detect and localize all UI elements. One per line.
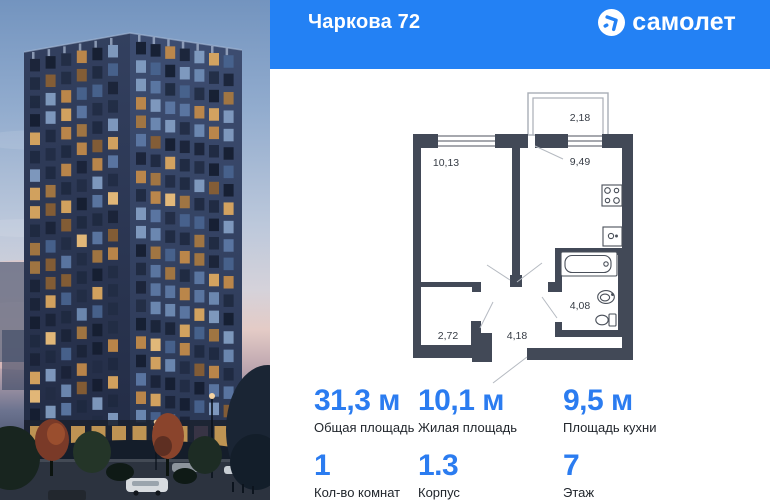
room-area-label: 9,49 bbox=[570, 156, 591, 168]
stat-label: Общая площадь bbox=[314, 420, 418, 435]
stat-label: Жилая площадь bbox=[418, 420, 563, 435]
room-area-label: 2,72 bbox=[438, 330, 459, 342]
kitchen-sink-icon bbox=[603, 227, 622, 246]
stat-value: 1 bbox=[314, 449, 418, 482]
toilet-icon bbox=[596, 314, 616, 326]
balcony-outline bbox=[528, 93, 608, 135]
stat-value: 1.3 bbox=[418, 449, 563, 482]
stat-floor: 7 Этаж bbox=[563, 449, 754, 500]
building-photo bbox=[0, 0, 270, 500]
stove-icon bbox=[602, 185, 622, 206]
stat-label: Кол-во комнат bbox=[314, 485, 418, 500]
arrow-circle-icon bbox=[598, 9, 625, 36]
room-area-label: 4,08 bbox=[570, 300, 591, 312]
brand-name: самолет bbox=[632, 9, 736, 36]
stat-value: 7 bbox=[563, 449, 754, 482]
room-area-label: 10,13 bbox=[433, 157, 459, 169]
stat-building: 1.3 Корпус bbox=[418, 449, 563, 500]
stat-label: Этаж bbox=[563, 485, 754, 500]
header-bar: Чаркова 72 самолет bbox=[270, 0, 770, 69]
floor-plan: 2,18 10,13 9,49 2,72 4,18 4,08 bbox=[400, 85, 650, 385]
stat-label: Корпус bbox=[418, 485, 563, 500]
building-photo-art bbox=[0, 0, 270, 500]
bathtub-icon bbox=[561, 252, 617, 276]
stats: 31,3 м Общая площадь 10,1 м Жилая площад… bbox=[314, 384, 754, 500]
washbasin-icon bbox=[598, 291, 615, 304]
leader-lines bbox=[480, 146, 563, 383]
stat-value: 10,1 м bbox=[418, 384, 563, 417]
stat-value: 9,5 м bbox=[563, 384, 754, 417]
stat-kitchen-area: 9,5 м Площадь кухни bbox=[563, 384, 754, 435]
listing-card[interactable]: Чаркова 72 самолет bbox=[0, 0, 770, 500]
room-area-label: 2,18 bbox=[570, 112, 591, 124]
room-area-label: 4,18 bbox=[507, 330, 528, 342]
stat-living-area: 10,1 м Жилая площадь bbox=[418, 384, 563, 435]
project-title: Чаркова 72 bbox=[308, 9, 420, 36]
stat-label: Площадь кухни bbox=[563, 420, 754, 435]
stat-rooms: 1 Кол-во комнат bbox=[314, 449, 418, 500]
stat-value: 31,3 м bbox=[314, 384, 418, 417]
stat-total-area: 31,3 м Общая площадь bbox=[314, 384, 418, 435]
brand-logo: самолет bbox=[598, 9, 736, 36]
